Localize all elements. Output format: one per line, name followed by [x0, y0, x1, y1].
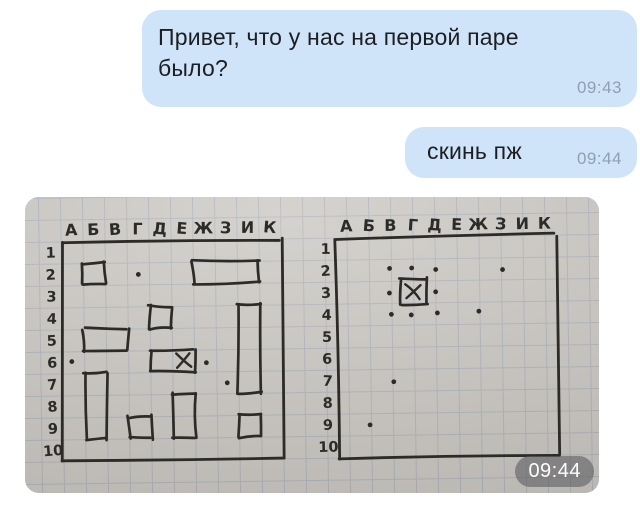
svg-text:Д: Д: [152, 219, 168, 239]
svg-text:4: 4: [46, 311, 57, 327]
svg-text:З: З: [220, 218, 232, 237]
svg-text:Б: Б: [87, 220, 100, 239]
message-time: 09:44: [577, 149, 622, 169]
svg-text:3: 3: [46, 290, 56, 306]
svg-text:А: А: [64, 220, 78, 240]
message-bubble-1[interactable]: Привет, что у нас на первой паре было? 0…: [142, 10, 637, 107]
svg-text:5: 5: [46, 333, 57, 350]
notebook-paper: АБВГДЕЖЗИК12345678910АБВГДЕЖЗИК123456789…: [25, 197, 599, 493]
svg-text:А: А: [339, 216, 353, 236]
svg-text:6: 6: [47, 356, 57, 372]
svg-text:И: И: [241, 218, 255, 237]
svg-text:4: 4: [322, 308, 332, 324]
photo-timestamp: 09:44: [515, 456, 594, 487]
battleship-drawing: АБВГДЕЖЗИК12345678910АБВГДЕЖЗИК123456789…: [25, 197, 599, 493]
photo-time-label: 09:44: [528, 460, 581, 482]
svg-text:Е: Е: [451, 215, 463, 234]
message-text: Привет, что у нас на первой паре было?: [142, 10, 637, 84]
svg-text:7: 7: [47, 377, 58, 394]
svg-text:Ж: Ж: [468, 214, 489, 234]
svg-text:6: 6: [322, 352, 333, 368]
svg-text:1: 1: [321, 242, 331, 258]
svg-text:Д: Д: [427, 215, 442, 235]
svg-text:Ж: Ж: [193, 218, 213, 237]
chat-screen: Привет, что у нас на первой паре было? 0…: [0, 0, 640, 526]
svg-text:8: 8: [322, 396, 333, 412]
message-bubble-2[interactable]: скинь пж 09:44: [405, 127, 637, 178]
svg-text:7: 7: [322, 374, 333, 390]
svg-text:К: К: [263, 217, 277, 237]
svg-text:8: 8: [47, 399, 58, 416]
photo-message[interactable]: АБВГДЕЖЗИК12345678910АБВГДЕЖЗИК123456789…: [25, 197, 599, 493]
svg-text:3: 3: [321, 286, 332, 303]
svg-text:10: 10: [318, 440, 339, 456]
svg-text:9: 9: [48, 421, 59, 437]
svg-text:И: И: [515, 214, 529, 233]
svg-text:Г: Г: [407, 215, 418, 235]
message-time: 09:43: [577, 78, 622, 98]
svg-text:В: В: [108, 219, 122, 239]
svg-text:1: 1: [45, 246, 55, 262]
svg-text:10: 10: [42, 443, 63, 461]
svg-text:2: 2: [45, 267, 56, 284]
svg-text:В: В: [384, 216, 396, 235]
svg-text:Б: Б: [362, 216, 376, 236]
svg-text:2: 2: [320, 263, 331, 280]
svg-text:Г: Г: [132, 219, 142, 238]
svg-text:З: З: [494, 214, 506, 234]
svg-text:5: 5: [322, 330, 332, 346]
svg-text:9: 9: [323, 418, 334, 434]
svg-text:К: К: [538, 214, 551, 233]
svg-text:Е: Е: [176, 218, 188, 238]
